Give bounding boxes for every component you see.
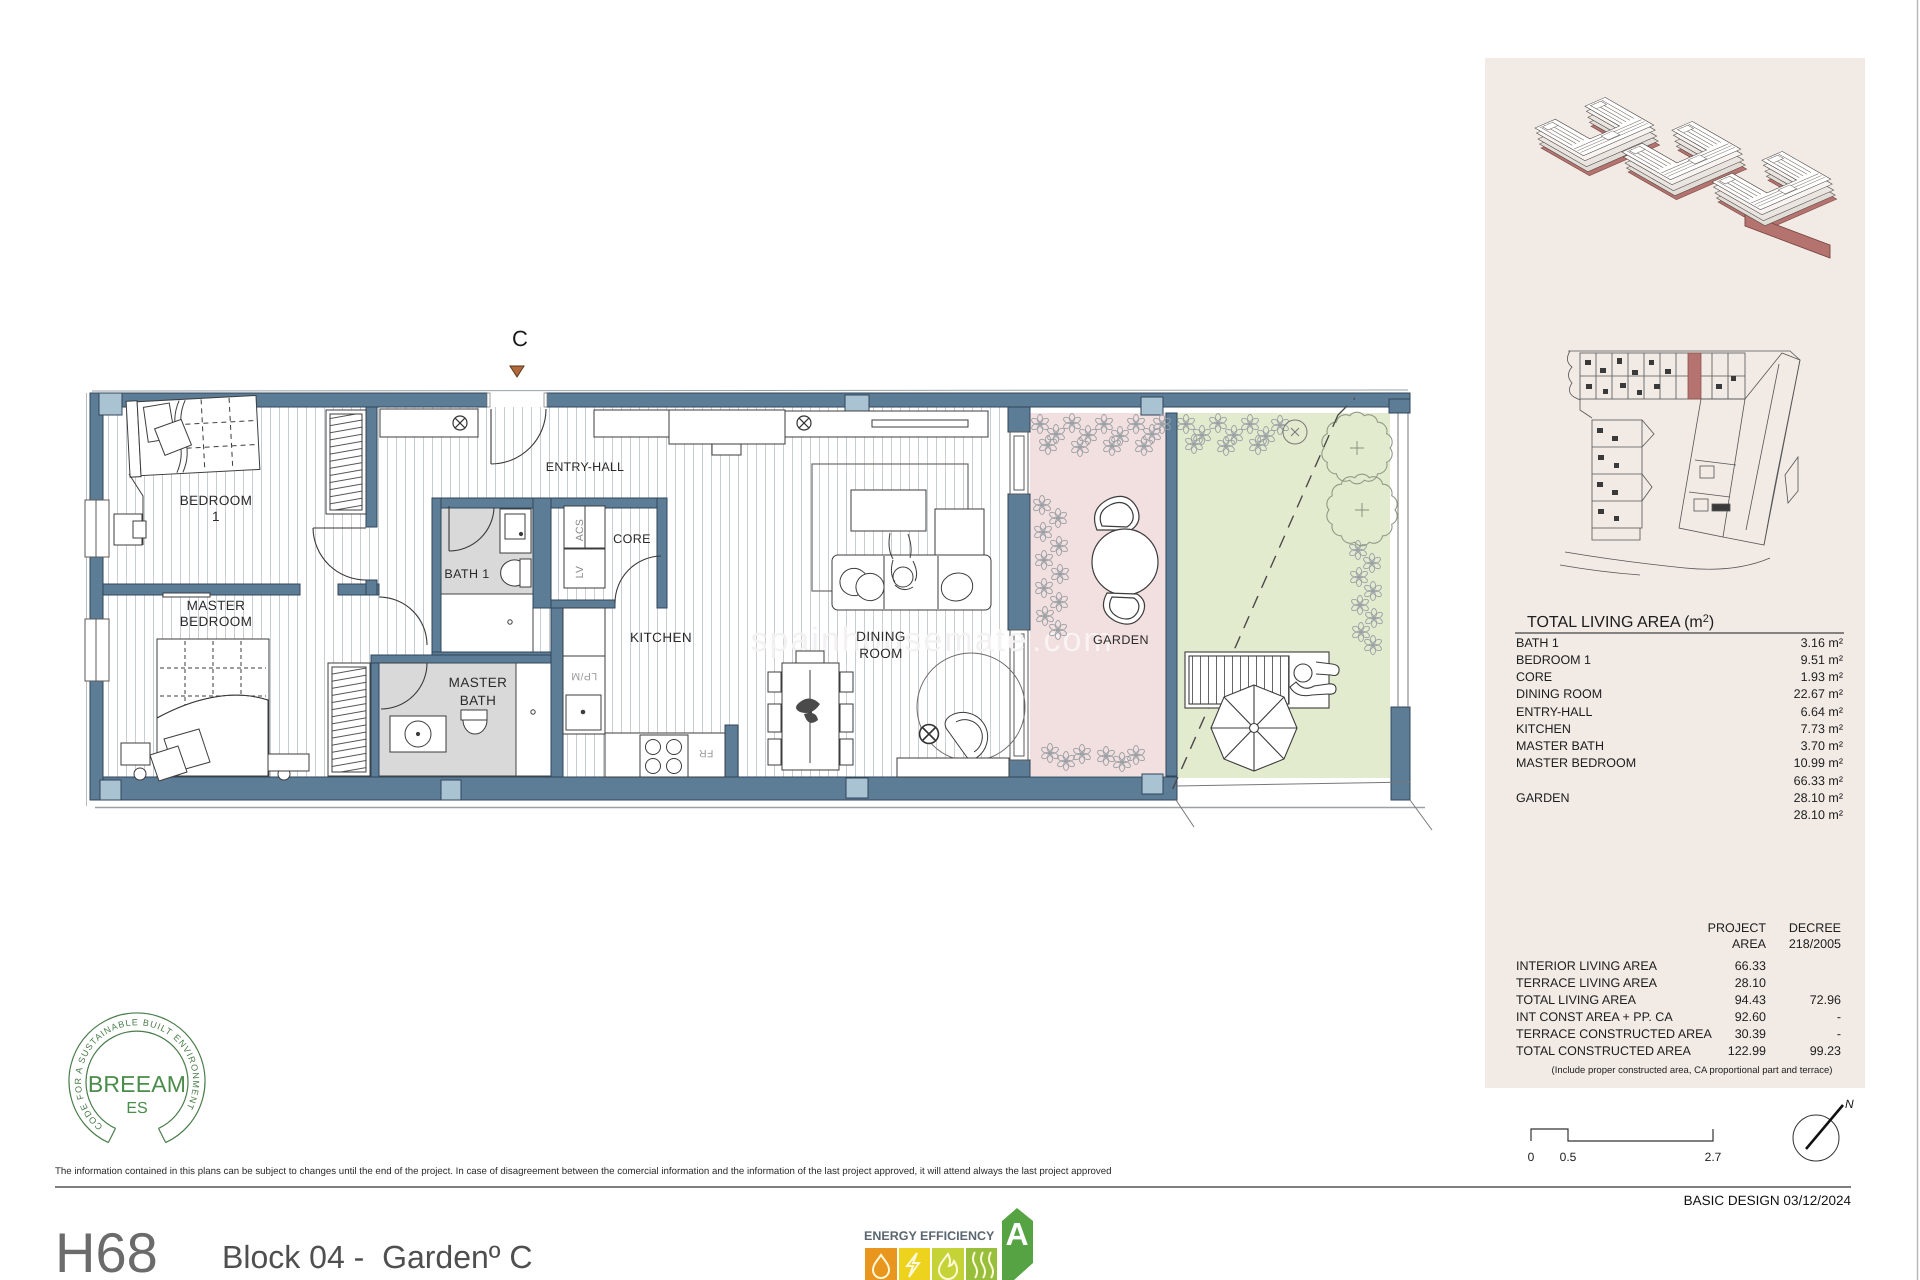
svg-text:C: C [512, 326, 528, 351]
svg-text:66.33: 66.33 [1735, 959, 1766, 973]
svg-text:ES: ES [126, 1100, 147, 1117]
svg-text:3.16 m²: 3.16 m² [1801, 636, 1843, 650]
svg-text:MASTER BEDROOM: MASTER BEDROOM [1516, 756, 1636, 770]
svg-text:CORE: CORE [613, 532, 651, 546]
svg-text:ENTRY-HALL: ENTRY-HALL [1516, 705, 1592, 719]
svg-text:DINING ROOM: DINING ROOM [1516, 687, 1602, 701]
svg-text:28.10: 28.10 [1735, 976, 1766, 990]
svg-text:LP/M: LP/M [571, 670, 597, 682]
svg-text:1.93 m²: 1.93 m² [1801, 670, 1843, 684]
svg-text:2.7: 2.7 [1705, 1150, 1722, 1164]
svg-text:BATH 1: BATH 1 [444, 567, 489, 581]
svg-text:Block 04 - Gardenº C: Block 04 - Gardenº C [222, 1239, 532, 1275]
svg-text:KITCHEN: KITCHEN [1516, 722, 1571, 736]
svg-text:BATH: BATH [460, 693, 497, 708]
svg-text:122.99: 122.99 [1728, 1044, 1766, 1058]
svg-text:MASTER: MASTER [449, 675, 508, 690]
svg-text:GARDEN: GARDEN [1516, 791, 1569, 805]
svg-text:DINING: DINING [856, 629, 906, 644]
svg-text:3.70 m²: 3.70 m² [1801, 739, 1843, 753]
svg-text:94.43: 94.43 [1735, 993, 1766, 1007]
svg-text:DECREE: DECREE [1789, 921, 1841, 935]
svg-text:66.33 m²: 66.33 m² [1794, 774, 1843, 788]
svg-text:0: 0 [1528, 1150, 1535, 1164]
svg-text:28.10 m²: 28.10 m² [1794, 808, 1843, 822]
svg-text:TOTAL CONSTRUCTED AREA: TOTAL CONSTRUCTED AREA [1516, 1044, 1691, 1058]
svg-text:MASTER: MASTER [187, 598, 246, 613]
svg-text:CORE: CORE [1516, 670, 1552, 684]
svg-text:MASTER BATH: MASTER BATH [1516, 739, 1604, 753]
svg-text:6.64 m²: 6.64 m² [1801, 705, 1843, 719]
svg-text:AREA: AREA [1732, 937, 1767, 951]
svg-text:PROJECT: PROJECT [1708, 921, 1767, 935]
svg-text:BEDROOM: BEDROOM [180, 614, 253, 629]
svg-text:7.73 m²: 7.73 m² [1801, 722, 1843, 736]
svg-text:ROOM: ROOM [859, 646, 903, 661]
svg-text:KITCHEN: KITCHEN [630, 630, 692, 645]
svg-text:0.5: 0.5 [1560, 1150, 1577, 1164]
svg-text:H68: H68 [55, 1221, 158, 1280]
svg-text:22.67 m²: 22.67 m² [1794, 687, 1843, 701]
svg-text:92.60: 92.60 [1735, 1010, 1766, 1024]
svg-text:LV: LV [574, 566, 586, 579]
svg-text:1: 1 [212, 509, 220, 524]
svg-text:BEDROOM: BEDROOM [180, 493, 253, 508]
svg-text:72.96: 72.96 [1810, 993, 1841, 1007]
svg-text:BASIC DESIGN 03/12/2024: BASIC DESIGN 03/12/2024 [1684, 1193, 1852, 1208]
svg-text:30.39: 30.39 [1735, 1027, 1766, 1041]
svg-text:(Include proper constructed ar: (Include proper constructed area, CA pro… [1552, 1065, 1833, 1076]
svg-text:-: - [1837, 1027, 1841, 1041]
svg-text:218/2005: 218/2005 [1789, 937, 1841, 951]
svg-text:99.23: 99.23 [1810, 1044, 1841, 1058]
svg-text:INT CONST AREA + PP. CA: INT CONST AREA + PP. CA [1516, 1010, 1673, 1024]
svg-text:INTERIOR LIVING AREA: INTERIOR LIVING AREA [1516, 959, 1658, 973]
svg-text:28.10 m²: 28.10 m² [1794, 791, 1843, 805]
svg-text:A: A [1005, 1216, 1028, 1252]
svg-text:10.99 m²: 10.99 m² [1794, 756, 1843, 770]
svg-text:TOTAL LIVING AREA (m2): TOTAL LIVING AREA (m2) [1527, 613, 1714, 631]
svg-text:ENTRY-HALL: ENTRY-HALL [546, 460, 624, 474]
svg-text:BREEAM: BREEAM [88, 1071, 186, 1097]
svg-text:ENERGY EFFICIENCY: ENERGY EFFICIENCY [864, 1229, 995, 1243]
svg-text:BEDROOM 1: BEDROOM 1 [1516, 653, 1591, 667]
svg-text:The information contained in t: The information contained in this plans … [55, 1166, 1112, 1177]
svg-text:-: - [1837, 1010, 1841, 1024]
svg-text:GARDEN: GARDEN [1093, 633, 1149, 647]
svg-text:BATH 1: BATH 1 [1516, 636, 1559, 650]
svg-text:FR: FR [699, 747, 714, 759]
svg-text:ACS: ACS [574, 519, 586, 542]
svg-text:9.51 m²: 9.51 m² [1801, 653, 1843, 667]
svg-text:N: N [1845, 1097, 1854, 1111]
svg-text:TERRACE LIVING AREA: TERRACE LIVING AREA [1516, 976, 1658, 990]
svg-text:TERRACE CONSTRUCTED AREA: TERRACE CONSTRUCTED AREA [1516, 1027, 1713, 1041]
svg-text:TOTAL LIVING AREA: TOTAL LIVING AREA [1516, 993, 1637, 1007]
